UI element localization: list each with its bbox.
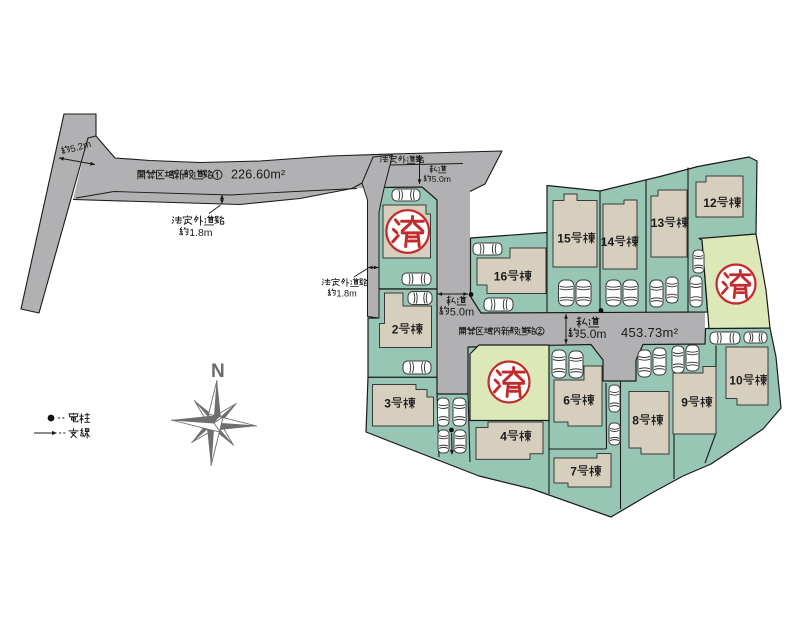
- svg-text:5.0m: 5.0m: [450, 307, 474, 319]
- svg-text:16: 16: [494, 269, 508, 283]
- svg-text:3: 3: [384, 396, 391, 410]
- svg-text:15: 15: [557, 231, 571, 245]
- svg-text:7: 7: [570, 464, 577, 478]
- svg-text:1.8m: 1.8m: [336, 289, 357, 299]
- svg-text:226.60m²: 226.60m²: [231, 168, 285, 182]
- svg-text:4: 4: [500, 429, 507, 443]
- svg-text:13: 13: [651, 216, 665, 230]
- svg-text:12: 12: [703, 196, 717, 210]
- svg-text:5.0m: 5.0m: [580, 327, 607, 341]
- svg-text:453.73m²: 453.73m²: [621, 325, 679, 340]
- svg-text:9: 9: [681, 395, 688, 409]
- svg-text:N: N: [211, 361, 225, 382]
- svg-text:14: 14: [601, 235, 615, 249]
- svg-text:2: 2: [392, 322, 399, 336]
- svg-text:8: 8: [632, 413, 639, 427]
- svg-text:5.0m: 5.0m: [432, 174, 451, 184]
- svg-text:6: 6: [563, 393, 570, 407]
- svg-text:10: 10: [729, 373, 743, 387]
- svg-text:1.8m: 1.8m: [189, 227, 213, 239]
